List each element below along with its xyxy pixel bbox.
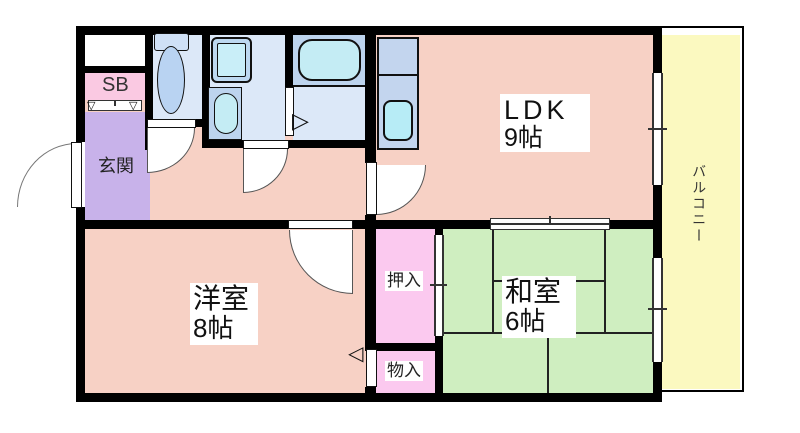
outer-wall-left-upper: [76, 26, 85, 142]
shoe-box-tick: [114, 100, 116, 106]
mid-wall-a: [76, 220, 288, 229]
label-balcony: バルコニー: [691, 164, 706, 244]
washroom-bath-divider: [285, 26, 293, 87]
label-japanese-room: 和室 6帖: [502, 276, 576, 338]
mid-wall-c: [610, 220, 662, 229]
label-entrance: 玄関: [98, 157, 134, 176]
sliding-door-tick: [549, 216, 551, 225]
window-japanese-balcony: [652, 258, 663, 362]
floor-plan: ▷ ◁ ▽ ▽ SB 玄関 LDK 9帖 洋室 8帖: [0, 0, 800, 433]
washing-machine-pan-icon: [211, 37, 252, 83]
fusuma-tick: [430, 284, 447, 286]
kitchen-sink-icon: [383, 100, 413, 141]
label-japanese-size: 6帖: [505, 307, 573, 335]
window-ldk-tick: [648, 128, 667, 130]
shoe-box-triangle-right-icon: ▽: [129, 101, 137, 112]
label-western-name: 洋室: [193, 284, 255, 314]
oshiire-japanese-divider-lower: [435, 336, 443, 402]
kitchen-counter-divider: [378, 74, 418, 76]
washbasin-icon: [214, 93, 238, 134]
bath-door-triangle-icon: ▷: [292, 110, 309, 132]
ldk-left-wall-upper: [365, 26, 376, 163]
shoe-box-triangle-left-icon: ▽: [87, 101, 95, 112]
outer-wall-right-c: [653, 362, 662, 402]
outer-wall-left-lower: [76, 207, 85, 402]
bath-bottom-wall: [285, 140, 376, 148]
entrance-door-arc: [17, 143, 77, 207]
toilet-door-leaf: [147, 119, 196, 128]
washroom-door-leaf: [243, 140, 289, 149]
storage-door-triangle-icon: ◁: [348, 344, 363, 364]
entrance-door-leaf: [71, 142, 82, 208]
label-japanese-name: 和室: [505, 277, 573, 307]
outer-wall-right-a: [653, 26, 662, 73]
western-room-door-leaf: [288, 220, 353, 229]
washing-machine-pan-inner: [217, 43, 246, 77]
tatami-line: [547, 332, 549, 393]
alcove-bottom-wall: [76, 66, 153, 73]
bathtub-icon: [298, 39, 361, 81]
label-western-size: 8帖: [193, 314, 255, 342]
ldk-door-leaf: [366, 162, 377, 215]
label-ldk-size: 9帖: [504, 125, 586, 152]
window-japanese-tick: [648, 308, 667, 310]
ldk-left-wall-lower: [365, 387, 376, 402]
toilet-bowl-icon: [157, 46, 185, 114]
label-ldk: LDK 9帖: [500, 94, 590, 152]
label-closet: 押入: [385, 271, 423, 291]
ldk-left-wall-mid: [365, 215, 376, 349]
label-shoe-box: SB: [102, 75, 129, 97]
storage-door-strip: [366, 349, 377, 387]
alcove-white: [85, 35, 145, 66]
label-storage: 物入: [385, 361, 423, 381]
label-western-room: 洋室 8帖: [190, 283, 258, 345]
oshiire-japanese-divider-upper: [435, 220, 443, 235]
label-ldk-name: LDK: [504, 96, 586, 125]
